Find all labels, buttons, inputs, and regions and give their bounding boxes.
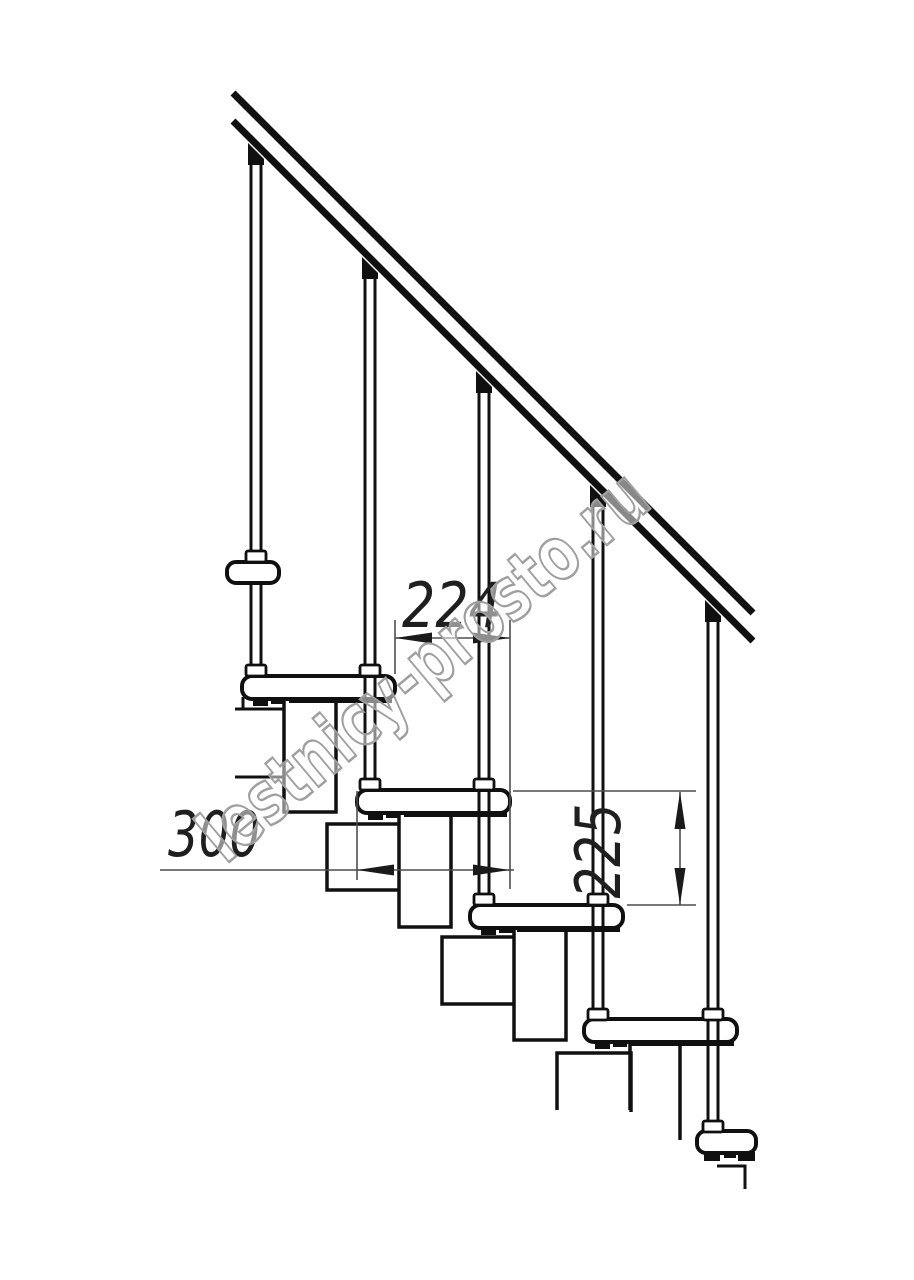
baluster-5 bbox=[708, 618, 718, 1132]
tread-3 bbox=[470, 905, 623, 928]
rail-connectors bbox=[248, 143, 721, 622]
drawing-canvas: 224 300 225 lestnicy-prosto.ru bbox=[0, 0, 914, 1280]
arrowhead-right bbox=[473, 865, 510, 876]
baluster-1 bbox=[251, 161, 261, 676]
staircase-elevation-drawing: 224 300 225 lestnicy-prosto.ru bbox=[0, 0, 914, 1280]
tread-4 bbox=[584, 1019, 737, 1042]
tread-2 bbox=[357, 790, 510, 813]
spine-module-4 bbox=[557, 1053, 631, 1112]
handrail-top-edge bbox=[233, 93, 753, 613]
support-column-3 bbox=[514, 928, 566, 1040]
tread-5-end-view bbox=[697, 1131, 756, 1153]
baluster-4 bbox=[593, 503, 603, 1020]
tread-0-end-view bbox=[227, 562, 279, 583]
dimension-225: 225 bbox=[513, 791, 696, 905]
bottom-step-tail bbox=[717, 1166, 745, 1189]
spine-module-2 bbox=[327, 824, 404, 890]
arrowhead-up bbox=[675, 792, 686, 829]
spine-module-3 bbox=[442, 937, 519, 1004]
arrowhead-down bbox=[675, 868, 686, 905]
dimension-label-225: 225 bbox=[562, 804, 635, 899]
